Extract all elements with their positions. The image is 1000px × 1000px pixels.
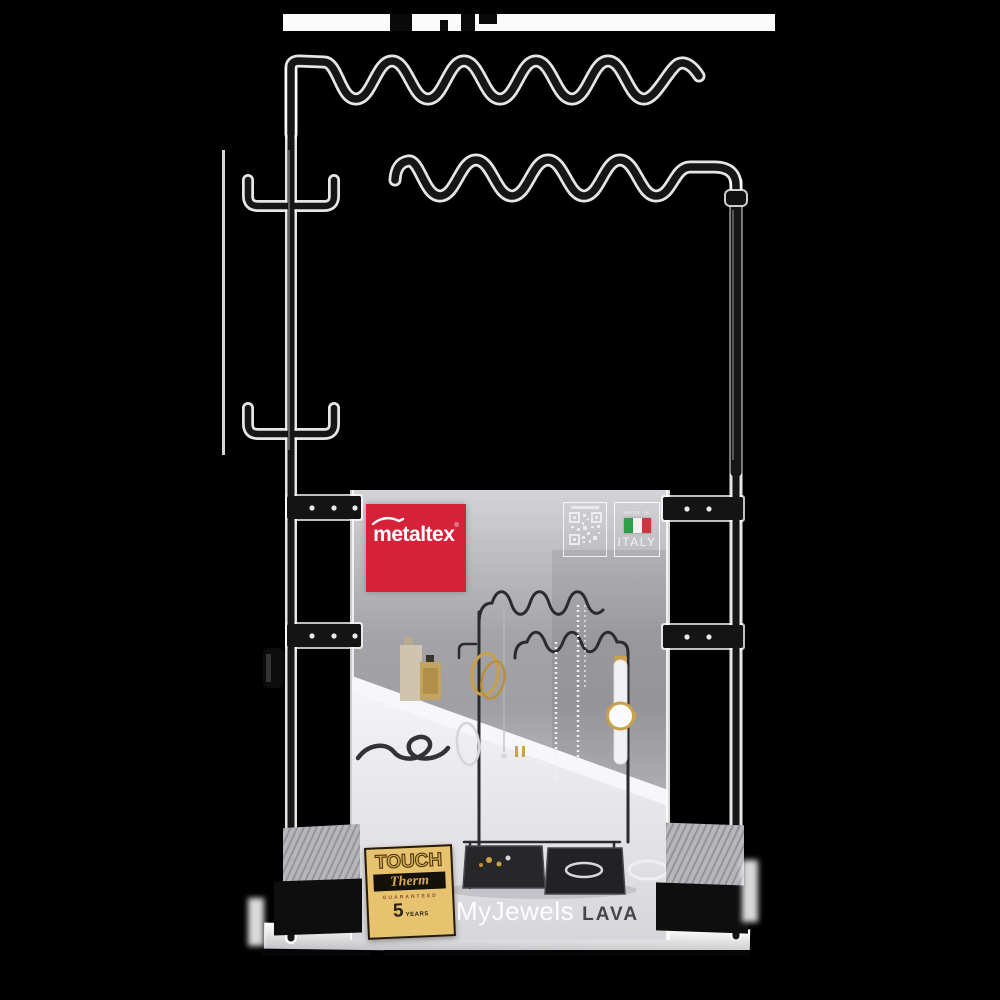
post-collar bbox=[725, 190, 747, 206]
wave-silhouette bbox=[440, 20, 448, 31]
product-photo: metaltex® bbox=[0, 0, 1000, 1000]
wave-silhouette bbox=[479, 14, 497, 24]
jewelry-rack-frame bbox=[0, 0, 1000, 1000]
highlight-glow bbox=[248, 898, 264, 946]
cutout-sliver bbox=[222, 150, 225, 455]
floor-shadow-line bbox=[384, 950, 750, 956]
wave-silhouette bbox=[461, 14, 475, 31]
photo-crop-strip bbox=[283, 14, 775, 31]
base-tray-side-left bbox=[274, 878, 362, 935]
floor-shadow-line bbox=[262, 950, 370, 956]
base-tray-side-right bbox=[656, 882, 748, 933]
pegboard-rails bbox=[287, 496, 743, 648]
wave-silhouette bbox=[390, 14, 412, 31]
highlight-glow bbox=[742, 860, 758, 922]
base-tray-top-right bbox=[666, 823, 744, 890]
wavy-bar-top bbox=[291, 61, 699, 134]
